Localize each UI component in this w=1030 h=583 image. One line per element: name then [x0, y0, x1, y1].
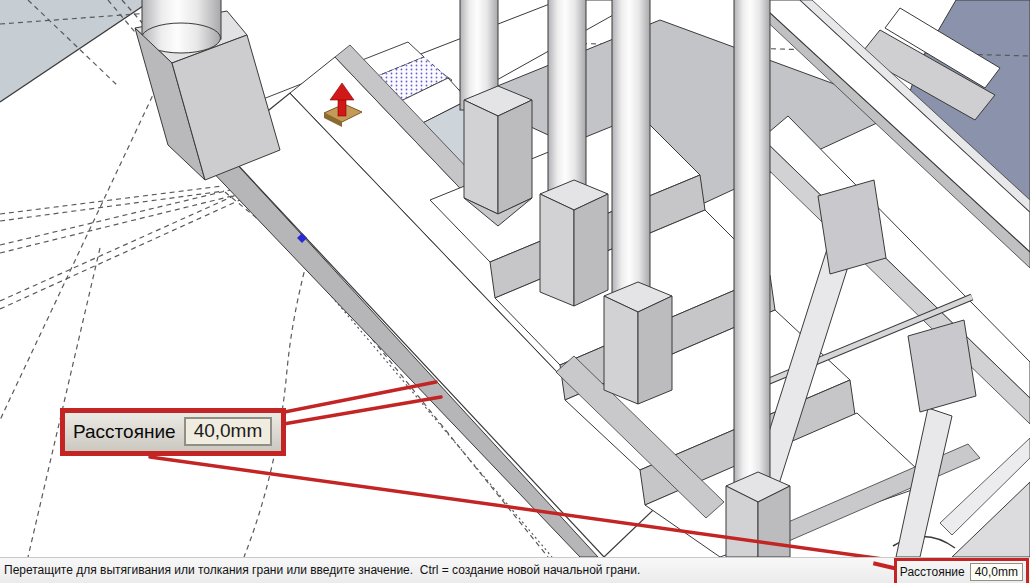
sketchup-window: Расстояние 40,0mm Перетащите для вытягив… [0, 0, 1030, 583]
distance-callout: Расстояние 40,0mm [60, 408, 286, 456]
vcb-distance-input[interactable]: 40,0mm [970, 563, 1023, 581]
callout-distance-label: Расстояние [73, 421, 176, 443]
vcb-distance-label: Расстояние [900, 565, 965, 579]
3d-viewport: Расстояние 40,0mm [0, 0, 1030, 557]
model-scene [0, 0, 1030, 557]
callout-distance-value: 40,0mm [184, 417, 273, 446]
status-message: Перетащите для вытягивания или толкания … [4, 563, 640, 577]
status-bar: Перетащите для вытягивания или толкания … [0, 557, 1030, 583]
measurements-box: Расстояние 40,0mm [894, 558, 1029, 583]
